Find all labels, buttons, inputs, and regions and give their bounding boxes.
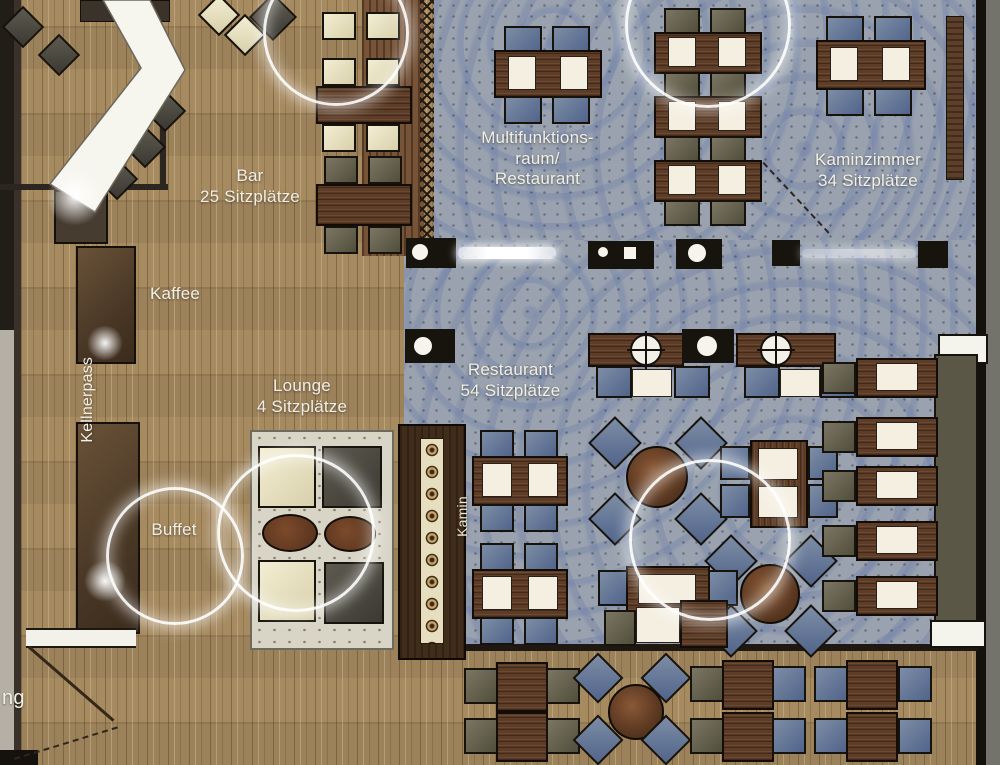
placemat <box>882 47 910 81</box>
chair <box>368 156 402 184</box>
restaurant-name: Restaurant <box>428 360 593 381</box>
curtain-divider <box>420 0 434 248</box>
dining-table <box>496 712 548 762</box>
chair <box>710 136 746 162</box>
post-light-symbol <box>598 247 608 257</box>
chair <box>480 430 514 458</box>
chair <box>464 718 498 754</box>
kamin-text: Kamin <box>453 497 470 538</box>
placemat <box>632 369 672 397</box>
chair <box>524 617 558 645</box>
placemat <box>718 165 746 195</box>
entrance-partial-label: ng <box>0 686 46 710</box>
chair <box>322 124 356 152</box>
multifunktionsraum-line1: Multifunktions- <box>440 128 635 149</box>
chair <box>552 96 590 124</box>
banquette-bench <box>934 354 978 630</box>
wall <box>986 0 1000 765</box>
table-lamp-symbol <box>760 334 792 366</box>
kaminzimmer-label: Kaminzimmer 34 Sitzplätze <box>782 150 954 191</box>
table-lamp-symbol <box>630 334 662 366</box>
placemat <box>876 422 918 450</box>
light-beam <box>802 249 916 258</box>
post-light-symbol <box>697 336 717 356</box>
chair <box>504 96 542 124</box>
chair <box>710 200 746 226</box>
chair <box>822 470 856 502</box>
chair <box>826 88 864 116</box>
restaurant-label: Restaurant 54 Sitzplätze <box>428 360 593 401</box>
chair <box>480 617 514 645</box>
chair <box>546 668 580 704</box>
chair <box>368 226 402 254</box>
chair <box>598 570 628 606</box>
chair <box>604 610 636 646</box>
chair <box>324 226 358 254</box>
placemat <box>668 165 696 195</box>
kaminzimmer-seats: 34 Sitzplätze <box>782 171 954 192</box>
light-beam <box>458 247 556 259</box>
lounge-seats: 4 Sitzplätze <box>228 397 376 418</box>
light-ring <box>106 487 244 625</box>
counter-light-glow <box>46 168 104 226</box>
chair <box>898 718 932 754</box>
chair <box>596 366 632 398</box>
post-light-symbol <box>688 244 706 262</box>
entrance-partial-text: ng <box>2 686 46 710</box>
dining-table <box>496 662 548 712</box>
column-post <box>918 241 948 268</box>
chair <box>874 88 912 116</box>
kamin-label: Kamin <box>414 469 510 565</box>
kaffee-text: Kaffee <box>132 284 218 305</box>
kellnerpass-text: Kellnerpass <box>78 357 98 443</box>
counter-front <box>26 628 136 648</box>
light-ring <box>217 454 375 612</box>
multifunktionsraum-label: Multifunktions- raum/ Restaurant <box>440 128 635 190</box>
placemat <box>528 463 558 497</box>
chair <box>744 366 780 398</box>
buffet-label: Buffet <box>134 520 214 541</box>
chair <box>366 124 400 152</box>
lounge-label: Lounge 4 Sitzplätze <box>228 376 376 417</box>
chair <box>664 200 700 226</box>
placemat <box>482 576 512 610</box>
window <box>930 620 986 648</box>
chair <box>822 362 856 394</box>
post-light-symbol <box>414 337 432 355</box>
chair <box>814 718 848 754</box>
placemat <box>758 448 798 480</box>
chair <box>524 504 558 532</box>
placemat <box>876 471 918 499</box>
chair <box>690 666 724 702</box>
placemat <box>528 576 558 610</box>
column-post <box>772 240 800 266</box>
post-mark <box>624 247 636 259</box>
multifunktionsraum-line3: Restaurant <box>440 169 635 190</box>
dining-table <box>722 712 774 762</box>
dining-table <box>846 660 898 710</box>
placemat <box>876 363 918 391</box>
floor-plan: Bar 25 Sitzplätze Multifunktions- raum/ … <box>0 0 1000 765</box>
chair <box>898 666 932 702</box>
lounge-name: Lounge <box>228 376 376 397</box>
chair <box>674 366 710 398</box>
chair <box>772 666 806 702</box>
chair <box>822 421 856 453</box>
placemat <box>876 581 918 609</box>
chair <box>464 668 498 704</box>
dining-table <box>722 660 774 710</box>
bar-seats: 25 Sitzplätze <box>150 187 350 208</box>
placemat <box>508 56 536 90</box>
buffet-text: Buffet <box>134 520 214 541</box>
bar-label: Bar 25 Sitzplätze <box>150 166 350 207</box>
column-post <box>588 241 654 269</box>
chair <box>822 580 856 612</box>
placemat <box>560 56 588 90</box>
post-light-symbol <box>412 244 428 260</box>
kaffee-label: Kaffee <box>132 284 218 305</box>
chair <box>524 543 558 571</box>
placemat <box>876 526 918 554</box>
chair <box>690 718 724 754</box>
dining-table <box>846 712 898 762</box>
light-ring <box>629 459 791 621</box>
chair <box>814 666 848 702</box>
chair <box>524 430 558 458</box>
placemat <box>830 47 858 81</box>
chair <box>664 136 700 162</box>
chair <box>772 718 806 754</box>
bar-name: Bar <box>150 166 350 187</box>
multifunktionsraum-line2: raum/ <box>440 149 635 170</box>
kaminzimmer-name: Kaminzimmer <box>782 150 954 171</box>
placemat <box>780 369 820 397</box>
restaurant-seats: 54 Sitzplätze <box>428 381 593 402</box>
kellnerpass-label: Kellnerpass <box>40 352 136 448</box>
chair <box>822 525 856 557</box>
